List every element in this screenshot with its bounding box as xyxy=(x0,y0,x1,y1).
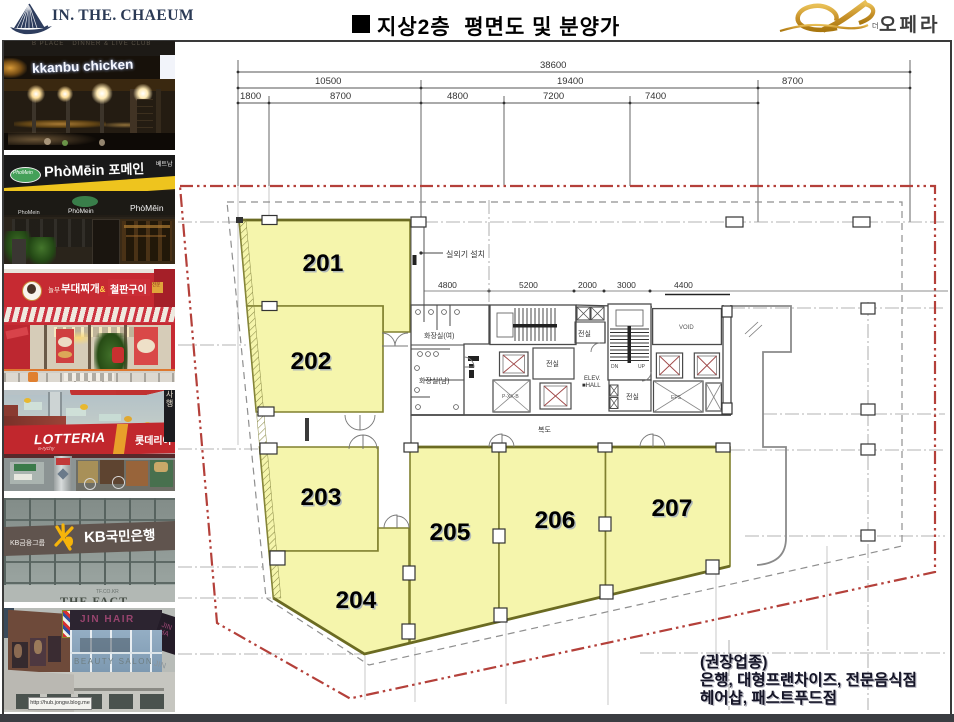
svg-text:ELEV.: ELEV. xyxy=(584,376,601,382)
svg-text:1800: 1800 xyxy=(240,91,261,102)
svg-text:204: 204 xyxy=(336,587,377,614)
svg-text:3000: 3000 xyxy=(617,280,636,290)
svg-text:5200: 5200 xyxy=(519,280,538,290)
svg-text:■HALL: ■HALL xyxy=(582,383,601,389)
svg-text:38600: 38600 xyxy=(540,60,566,71)
svg-text:P-XX-B: P-XX-B xyxy=(502,394,519,400)
svg-text:205: 205 xyxy=(430,519,471,546)
svg-text:화장실(여): 화장실(여) xyxy=(424,331,454,340)
svg-text:8700: 8700 xyxy=(330,91,351,102)
svg-text:4800: 4800 xyxy=(438,280,457,290)
svg-text:2000: 2000 xyxy=(578,280,597,290)
svg-text:203: 203 xyxy=(301,484,342,511)
svg-text:8700: 8700 xyxy=(782,76,803,87)
svg-text:전실: 전실 xyxy=(626,392,639,401)
svg-text:DN: DN xyxy=(611,364,619,370)
svg-text:VOID: VOID xyxy=(679,325,694,331)
svg-text:7400: 7400 xyxy=(645,91,666,102)
svg-text:201: 201 xyxy=(303,250,344,277)
svg-text:202: 202 xyxy=(291,348,332,375)
svg-text:4400: 4400 xyxy=(674,280,693,290)
svg-text:실외기 설치: 실외기 설치 xyxy=(446,249,485,259)
svg-text:화장실(남): 화장실(남) xyxy=(419,376,449,385)
svg-text:전실: 전실 xyxy=(578,329,591,338)
svg-text:7200: 7200 xyxy=(543,91,564,102)
svg-text:10500: 10500 xyxy=(315,76,341,87)
svg-text:EPS: EPS xyxy=(671,395,682,401)
svg-text:전실: 전실 xyxy=(546,359,559,368)
svg-text:4800: 4800 xyxy=(447,91,468,102)
svg-text:UP: UP xyxy=(638,364,646,370)
svg-text:207: 207 xyxy=(652,495,693,522)
svg-text:19400: 19400 xyxy=(557,76,583,87)
svg-text:206: 206 xyxy=(535,507,576,534)
svg-text:복도: 복도 xyxy=(538,426,551,434)
